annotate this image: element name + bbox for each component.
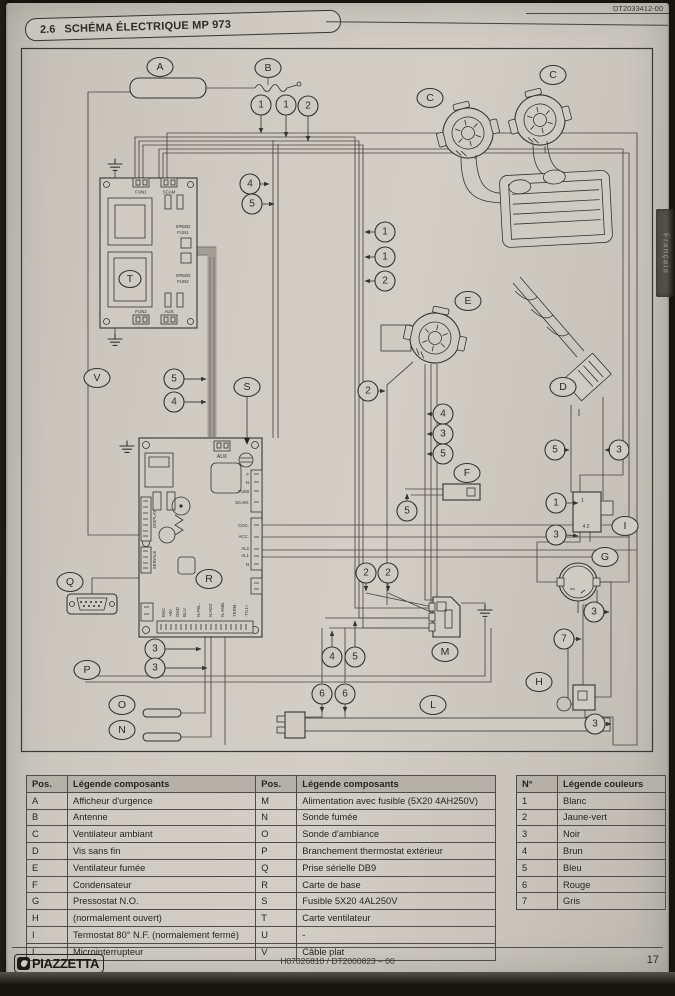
svg-text:SERIALE: SERIALE	[152, 551, 157, 570]
legend-row: 4Brun	[517, 843, 666, 860]
power-inlet-m	[429, 597, 460, 637]
svg-text:B: B	[264, 62, 271, 74]
legend-row: FCondensateurRCarte de base	[27, 876, 496, 893]
legend-row: 5Bleu	[517, 859, 666, 876]
microswitch-l	[277, 712, 610, 738]
svg-text:ACC.: ACC.	[239, 534, 250, 539]
smoke-probe-n	[143, 733, 181, 741]
wire-callout: 4	[164, 392, 184, 412]
legend-row: AAfficheur d'urgenceMAlimentation avec f…	[27, 792, 496, 809]
wire-callout: 5	[397, 501, 417, 521]
svg-text:SCAM.: SCAM.	[235, 500, 249, 505]
svg-text:3: 3	[616, 445, 622, 456]
air-grille	[499, 167, 613, 248]
svg-text:C: C	[549, 69, 557, 81]
svg-text:FUMI: FUMI	[238, 489, 249, 494]
svg-text:AUX: AUX	[217, 454, 228, 460]
wire-callout: 7	[554, 629, 574, 649]
svg-text:COC.: COC.	[238, 523, 249, 528]
component-label-p: P	[74, 661, 100, 680]
svg-text:O: O	[118, 699, 126, 711]
wire-callout: 2	[298, 96, 318, 116]
svg-text:AUX: AUX	[164, 309, 173, 314]
svg-text:AL2: AL2	[241, 546, 249, 551]
legend-row: 3Noir	[517, 826, 666, 843]
svg-text:1: 1	[581, 498, 584, 504]
svg-text:C: C	[426, 92, 434, 104]
svg-text:L: L	[430, 699, 436, 711]
wire-callout: 3	[585, 714, 605, 734]
legend-row: H(normalement ouvert)TCarte ventilateur	[27, 910, 496, 927]
schematic-diagram: FUN1 SCAM SPEED FUN1 SPEED FUN2 FUN2 AUX	[15, 45, 659, 755]
component-label-i: I	[612, 517, 638, 536]
component-label-o: O	[109, 696, 135, 715]
top-rule	[526, 13, 669, 14]
svg-text:R: R	[205, 573, 213, 585]
svg-text:BLU: BLU	[182, 608, 187, 617]
svg-text:N: N	[118, 724, 126, 736]
component-label-b: B	[255, 59, 281, 78]
svg-text:1: 1	[258, 100, 264, 111]
component-label-n: N	[109, 721, 135, 740]
ground-icon	[120, 441, 134, 452]
wire-callout: 1	[375, 247, 395, 267]
svg-text:7: 7	[561, 634, 567, 645]
wire-callout: 5	[164, 369, 184, 389]
svg-text:N: N	[246, 480, 249, 485]
legend-header-row: N° Légende couleurs	[517, 776, 666, 793]
legend-row: ITermostat 80° N.F. (normalement fermé)U…	[27, 927, 496, 944]
ground-icon	[478, 605, 492, 616]
svg-text:FUN2: FUN2	[135, 309, 147, 314]
header-rule	[326, 21, 668, 26]
legend-row: 2Jaune-vert	[517, 809, 666, 826]
wire-callout: 1	[375, 222, 395, 242]
component-label-e: E	[455, 292, 481, 311]
svg-text:D: D	[559, 381, 567, 393]
legend-header-row: Pos. Légende composants Pos. Légende com…	[27, 776, 496, 793]
svg-text:2: 2	[365, 386, 371, 397]
legend-row: 1Blanc	[517, 792, 666, 809]
wire-callout: 2	[356, 563, 376, 583]
svg-text:M: M	[441, 646, 450, 658]
wire-callout: 5	[242, 194, 262, 214]
svg-text:6: 6	[342, 689, 348, 700]
component-label-t: T	[119, 271, 141, 288]
svg-text:G: G	[601, 551, 609, 563]
svg-text:5: 5	[249, 199, 255, 210]
svg-text:5: 5	[352, 652, 358, 663]
legend-row: GPressostat N.O.SFusible 5X20 4AL250V	[27, 893, 496, 910]
component-label-g: G	[592, 548, 618, 567]
wire-callout: 4	[433, 404, 453, 424]
wire-callout: 3	[584, 602, 604, 622]
svg-text:FUN1: FUN1	[177, 230, 189, 235]
svg-text:DISPLAY: DISPLAY	[152, 510, 157, 528]
wire-callout: 3	[609, 440, 629, 460]
legend-row: 7Gris	[517, 893, 666, 910]
svg-text:3: 3	[440, 429, 446, 440]
ground-icon	[108, 159, 122, 170]
svg-text:5: 5	[440, 449, 446, 460]
component-label-s: S	[234, 378, 260, 397]
svg-text:GND: GND	[175, 607, 180, 617]
wire-callout: 1	[251, 95, 271, 115]
svg-text:N: N	[246, 562, 249, 567]
thermostat-i: 1 4 2	[573, 492, 613, 532]
wire-callout: 5	[545, 440, 565, 460]
svg-text:SPEED: SPEED	[176, 224, 191, 229]
serial-port-q	[67, 594, 117, 614]
svg-text:P: P	[83, 664, 90, 676]
legend-colors-table: N° Légende couleurs 1Blanc 2Jaune-vert 3…	[516, 775, 666, 910]
svg-text:2: 2	[385, 568, 391, 579]
svg-text:FUN2: FUN2	[177, 279, 189, 284]
svg-text:1: 1	[283, 100, 289, 111]
fan-board-t: FUN1 SCAM SPEED FUN1 SPEED FUN2 FUN2 AUX	[100, 178, 197, 328]
wire-callout: 5	[433, 444, 453, 464]
svg-text:3: 3	[592, 719, 598, 730]
wire-callout: 3	[433, 424, 453, 444]
svg-text:2: 2	[363, 568, 369, 579]
wire-callout: 4	[240, 174, 260, 194]
svg-text:2: 2	[305, 101, 311, 112]
svg-text:+5V: +5V	[168, 609, 173, 617]
room-fan-c-2	[502, 82, 576, 151]
svg-text:FUN1: FUN1	[135, 190, 147, 195]
wire-callout: 2	[358, 381, 378, 401]
svg-text:4: 4	[171, 397, 177, 408]
svg-text:5: 5	[552, 445, 558, 456]
capacitor-f	[443, 484, 480, 500]
svg-text:3: 3	[591, 607, 597, 618]
component-label-f: F	[454, 464, 480, 483]
legend-row: 6Rouge	[517, 876, 666, 893]
wire-callout: 6	[335, 684, 355, 704]
component-label-v: V	[84, 369, 110, 388]
svg-text:ENC: ENC	[161, 608, 166, 617]
svg-text:4: 4	[329, 652, 335, 663]
smoke-fan-e	[381, 301, 472, 369]
svg-text:V: V	[93, 372, 100, 384]
svg-text:3: 3	[152, 663, 158, 674]
display-unit-a	[130, 78, 255, 98]
component-label-q: Q	[57, 573, 83, 592]
footer-doc-code: H07026810 / DT2000823 – 00	[6, 956, 669, 966]
component-label-c2: C	[540, 66, 566, 85]
antenna-b	[255, 82, 301, 92]
component-label-m: M	[432, 643, 458, 662]
legend-row: BAntenneNSonde fumée	[27, 809, 496, 826]
main-board-r: AUX F N FUMI SCAM. COC. ACC. AL2 AL1 N	[139, 438, 262, 637]
svg-text:A: A	[156, 61, 163, 73]
component-label-l: L	[420, 696, 446, 715]
wire-callout: 6	[312, 684, 332, 704]
svg-text:6: 6	[319, 689, 325, 700]
doc-ref-top: DT2033412-00	[613, 4, 663, 13]
svg-text:H: H	[535, 676, 543, 688]
photo-edge-right	[667, 0, 675, 996]
section-number: 2.6	[40, 23, 56, 35]
svg-text:4 2: 4 2	[583, 524, 590, 530]
svg-text:S: S	[243, 381, 250, 393]
wire-callout: 3	[145, 658, 165, 678]
svg-text:2: 2	[382, 276, 388, 287]
wire-callout: 5	[345, 647, 365, 667]
svg-text:Q: Q	[66, 576, 74, 588]
svg-text:3: 3	[152, 644, 158, 655]
svg-text:1: 1	[553, 498, 559, 509]
svg-text:SPEED: SPEED	[176, 273, 191, 278]
svg-text:E: E	[464, 295, 471, 307]
svg-text:4: 4	[440, 409, 446, 420]
svg-text:N.AMB.: N.AMB.	[220, 602, 225, 617]
page-title: SCHÉMA ÉLECTRIQUE MP 973	[64, 18, 231, 35]
wire-callout: 4	[322, 647, 342, 667]
svg-text:3: 3	[553, 530, 559, 541]
component-label-a: A	[147, 58, 173, 77]
svg-text:F: F	[464, 467, 470, 479]
wire-callout: 3	[546, 525, 566, 545]
wire-callout: 2	[378, 563, 398, 583]
room-probe-o	[143, 709, 181, 717]
legend-row: CVentilateur ambiantOSonde d'ambiance	[27, 826, 496, 843]
svg-text:N.H2O: N.H2O	[208, 603, 213, 617]
scanned-manual-page: DT2033412-00 2.6 SCHÉMA ÉLECTRIQUE MP 97…	[6, 3, 669, 975]
component-label-c1: C	[417, 89, 443, 108]
footer-rule	[12, 947, 663, 948]
wire-callout: 1	[276, 95, 296, 115]
svg-text:5: 5	[404, 506, 410, 517]
svg-text:F: F	[246, 472, 249, 477]
legend-row: DVis sans finPBranchement thermostat ext…	[27, 843, 496, 860]
component-label-h: H	[526, 673, 552, 692]
svg-text:-TC1+: -TC1+	[244, 604, 249, 617]
svg-text:TERM.: TERM.	[232, 603, 237, 617]
svg-text:4: 4	[247, 179, 253, 190]
svg-text:1: 1	[382, 227, 388, 238]
svg-text:1: 1	[382, 252, 388, 263]
wire-callout: 3	[145, 639, 165, 659]
wire-callout: 1	[546, 493, 566, 513]
safety-thermostat-h	[557, 643, 595, 711]
svg-text:5: 5	[171, 374, 177, 385]
svg-text:I: I	[624, 520, 627, 532]
ground-icon	[108, 334, 122, 345]
wire-callout: 2	[375, 271, 395, 291]
svg-text:SCAM: SCAM	[163, 190, 176, 195]
section-header: 2.6 SCHÉMA ÉLECTRIQUE MP 973	[25, 10, 342, 42]
legend-components-table: Pos. Légende composants Pos. Légende com…	[26, 775, 496, 961]
legend-row: EVentilateur fuméeQPrise sérielle DB9	[27, 859, 496, 876]
svg-text:T: T	[127, 273, 134, 285]
photo-edge-left	[0, 0, 8, 996]
page-number: 17	[647, 954, 659, 966]
svg-text:AL1: AL1	[241, 553, 249, 558]
component-label-d: D	[550, 378, 576, 397]
room-fan-c-1	[430, 95, 504, 164]
component-label-r: R	[196, 570, 222, 589]
svg-text:N.PEL.: N.PEL.	[196, 603, 201, 617]
photo-edge-bottom	[0, 972, 675, 996]
